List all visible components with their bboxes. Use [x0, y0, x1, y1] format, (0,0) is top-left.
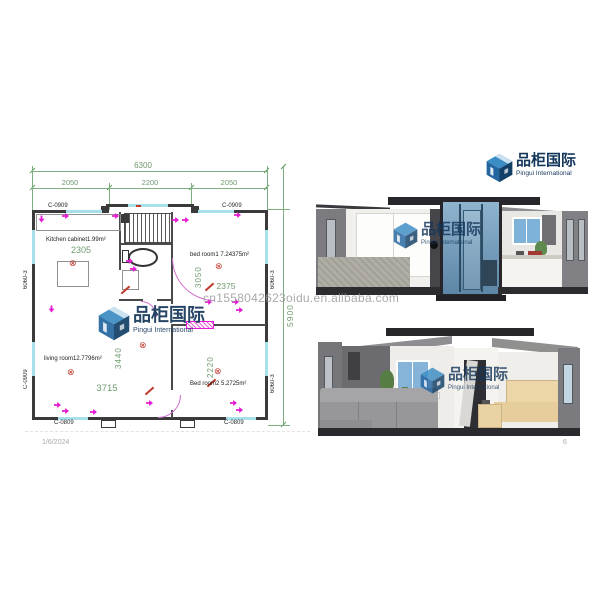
logo-cn-text: 品柜国际 — [516, 153, 576, 169]
nightstand-item — [482, 400, 490, 404]
toilet — [128, 248, 158, 267]
dim-bed2-height: 2220 — [207, 350, 215, 384]
page: 6300 2050 2200 2050 5900 — [0, 0, 600, 600]
window-strip — [32, 342, 35, 376]
window-slot — [563, 364, 573, 404]
base-right — [498, 287, 588, 294]
room-label-bed1: bed room1 7.24375m² — [190, 252, 249, 258]
base-bar — [318, 428, 580, 436]
window-slot — [566, 219, 574, 261]
sheet-edge-line — [25, 431, 310, 432]
extension-line — [268, 425, 290, 426]
outlet-symbol — [230, 400, 237, 406]
logo-cn-text: 品柜国际 — [448, 367, 508, 383]
dimension-line — [32, 188, 268, 189]
logo-cube-icon — [393, 222, 418, 249]
logo-en-text: Pingui International — [516, 171, 576, 178]
dim-seg-3: 2050 — [209, 179, 249, 187]
dim-living-width: 3715 — [84, 384, 130, 394]
code-top-left: C-0909 — [48, 203, 68, 209]
extension-line — [268, 209, 290, 210]
nightstand — [478, 404, 502, 428]
outlet-symbol — [54, 402, 61, 408]
bottom-tab — [180, 420, 195, 428]
outlet-symbol — [90, 409, 97, 415]
logo-cn-text: 品柜国际 — [421, 222, 481, 238]
window-strip — [265, 342, 268, 376]
outlet-symbol — [236, 407, 243, 413]
outlet-symbol — [172, 217, 179, 223]
ceiling-light-icon: ⊗ — [69, 259, 77, 268]
render-top-view — [316, 197, 588, 305]
extension-line — [32, 166, 33, 211]
window-strip — [32, 230, 35, 264]
stair-hatch — [124, 213, 172, 243]
code-bottom-right: C-0809 — [224, 420, 244, 426]
room-label-kitchen: Kitchen cabinet1.99m² — [46, 237, 106, 243]
ceiling-light-icon: ⊗ — [139, 341, 147, 350]
date-stamp: 1/6/2024 — [42, 439, 69, 446]
logo-cube-icon — [486, 153, 513, 183]
wall-art — [348, 352, 360, 380]
outlet-symbol — [49, 306, 55, 313]
roof-bar — [386, 328, 534, 336]
bed-platform — [494, 402, 568, 422]
code-top-right: C-0909 — [222, 203, 242, 209]
window-strip — [128, 204, 168, 207]
room-label-living: living room12.7796m² — [44, 356, 102, 362]
code-left-upper: 6060-3 — [23, 251, 29, 289]
stone-platform — [318, 257, 410, 289]
dim-seg-1: 2050 — [50, 179, 90, 187]
logo-cube-icon — [98, 306, 130, 341]
dim-total-width: 6300 — [113, 162, 173, 170]
outlet-symbol — [182, 217, 189, 223]
interior-gray-panel — [542, 215, 556, 245]
logo-en-text: Pingui International — [421, 240, 481, 246]
window-strip — [198, 210, 234, 213]
kitchen-counter — [36, 214, 121, 231]
ceiling-light-icon: ⊗ — [215, 262, 223, 271]
code-bottom-left: C-0809 — [54, 420, 74, 426]
extension-line — [267, 166, 268, 211]
code-right-lower: 6060-3 — [270, 355, 276, 393]
direction-arrow — [145, 387, 155, 396]
lower-wall-right — [502, 259, 562, 289]
bathroom-fixture — [481, 260, 497, 286]
base-core — [436, 295, 506, 301]
brand-watermark-plan: 品柜国际 Pingui International — [98, 306, 205, 341]
dim-bed1-width: 2375 — [206, 282, 246, 291]
plant — [380, 370, 394, 390]
sofa-seam — [396, 402, 397, 428]
wall-stair-bath — [120, 243, 172, 245]
logo-en-text: Pingui International — [133, 327, 205, 334]
ceiling-light-icon: ⊗ — [67, 368, 75, 377]
logo-cube-icon — [420, 367, 445, 394]
dimension-line — [32, 171, 268, 172]
brand-watermark-render-top: 品柜国际 Pingui International — [393, 222, 481, 249]
window-strip — [265, 230, 268, 264]
code-right-upper: 6060-3 — [270, 251, 276, 289]
window-mullion — [526, 219, 527, 243]
brand-watermark-render-bottom: 品柜国际 Pingui International — [420, 367, 508, 394]
page-number: 6 — [563, 439, 567, 446]
code-left-lower: C-0909 — [23, 351, 29, 389]
dim-bed1-height: 3050 — [195, 259, 203, 295]
logo-en-text: Pingui International — [448, 385, 508, 391]
outlet-symbol — [146, 400, 153, 406]
wall-bath-bottom — [119, 299, 143, 301]
stair-landing-block — [121, 214, 129, 223]
logo-cn-text: 品柜国际 — [133, 306, 205, 325]
alibaba-url-watermark: cn1558042623oidu.en.alibaba.com — [203, 291, 399, 305]
door-arc-entry — [158, 395, 181, 418]
shower-tray — [122, 270, 139, 290]
room-label-bed2: Bed room2 5.2725m² — [190, 381, 246, 387]
dim-seg-2: 2200 — [130, 179, 170, 187]
ceiling-light-icon: ⊗ — [214, 367, 222, 376]
outlet-symbol — [62, 408, 69, 414]
window-strip — [66, 210, 102, 213]
bottom-tab — [101, 420, 116, 428]
window-tag-mark — [136, 205, 141, 207]
dim-kitchen-width: 2305 — [58, 246, 104, 255]
outlet-symbol — [236, 307, 243, 313]
dim-living-height: 3440 — [115, 338, 123, 378]
brand-logo: 品柜国际 Pingui International — [486, 153, 576, 183]
wall-bath-bottom — [157, 299, 173, 301]
window-slot — [578, 219, 585, 261]
